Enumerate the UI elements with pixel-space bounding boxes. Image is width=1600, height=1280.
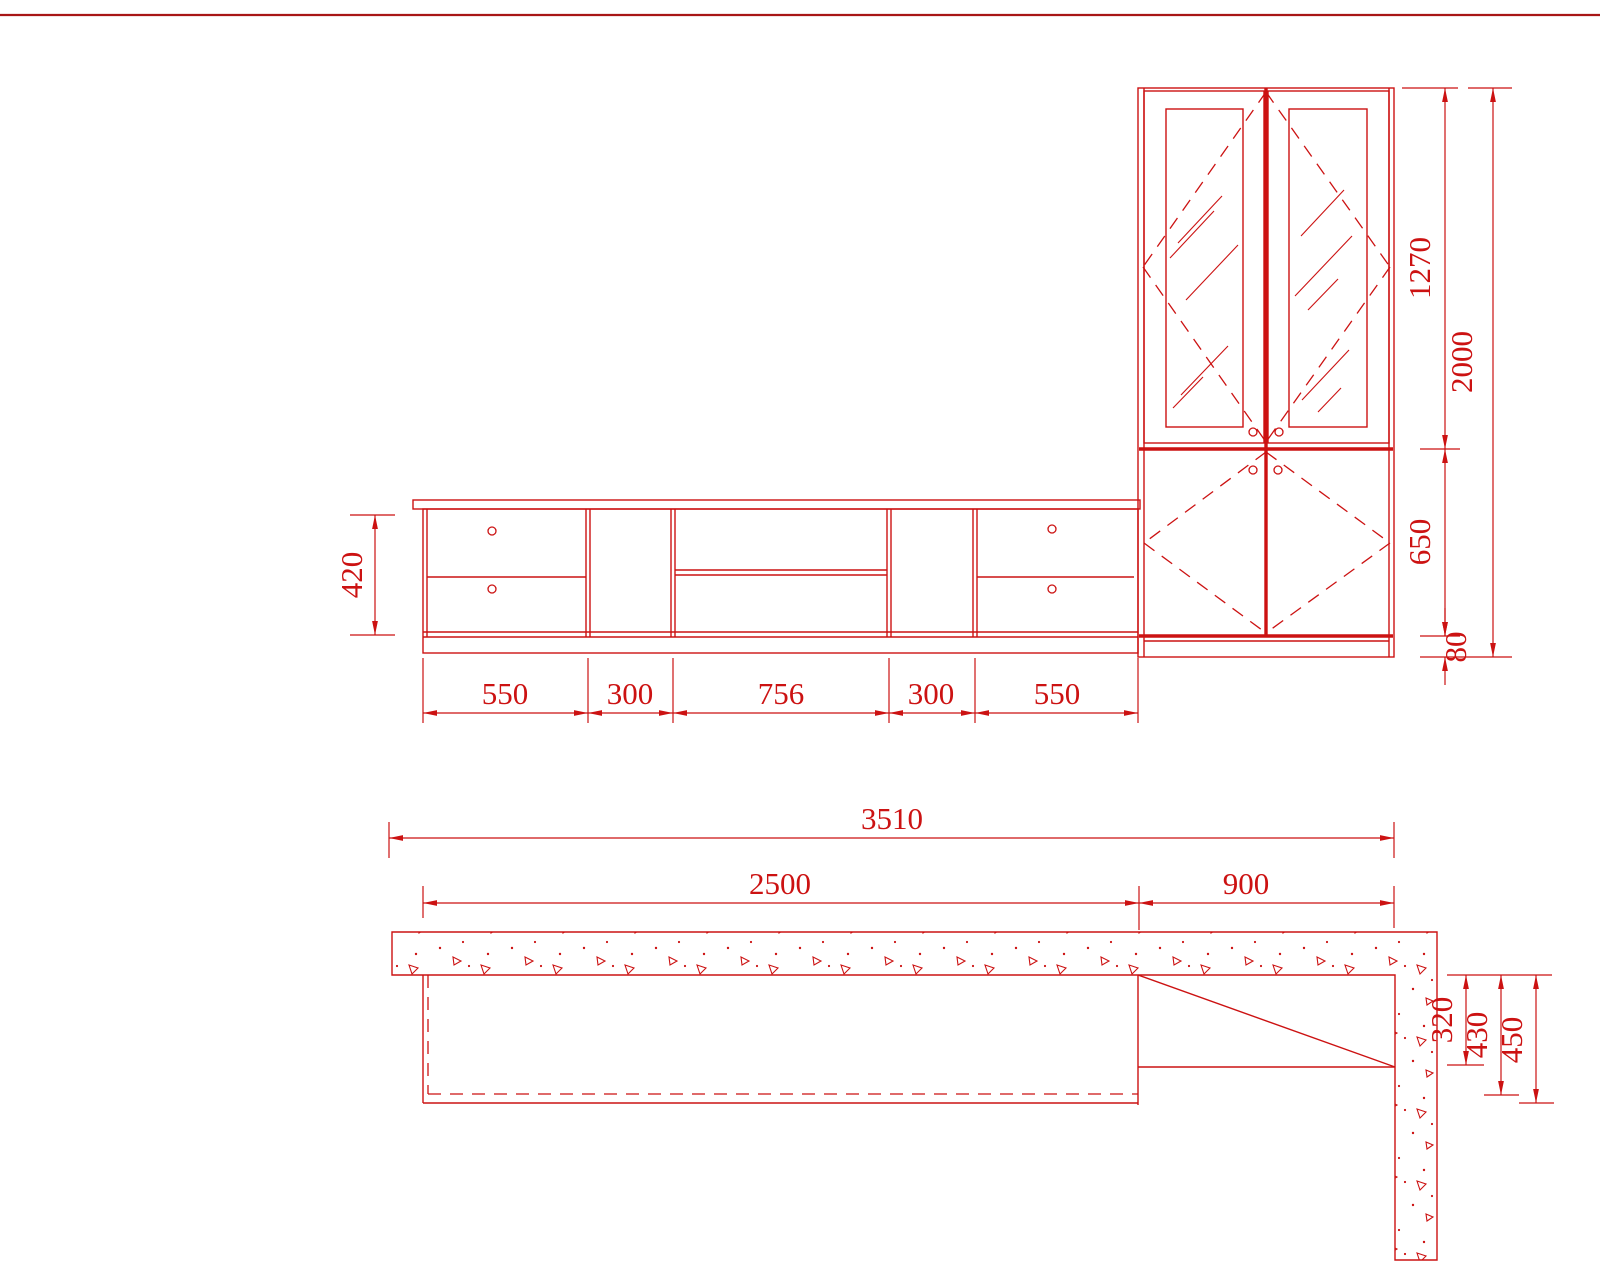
wall-hatch [392,932,1437,1260]
dim-label-2500: 2500 [749,866,811,901]
plan-view: 3510 2500 900 320 430 450 [389,801,1554,1260]
tv-cabinet-left-drawers [427,527,586,593]
dim-label-80: 80 [1438,632,1473,663]
dim-label-300-right: 300 [908,676,955,711]
dim-label-650: 650 [1402,519,1437,566]
dim-label-3510: 3510 [861,801,923,836]
tv-cabinet-top-board [413,500,1140,509]
cad-drawing-canvas: 420 550 300 756 300 550 [0,0,1600,1280]
glass-panel-right [1289,109,1367,427]
tv-cabinet-right-drawers [977,525,1134,593]
tv-cabinet-plan [423,975,1138,1105]
dim-elevation-height: 420 [334,515,395,635]
tv-cabinet-dividers [586,509,977,637]
door-knob [1275,428,1283,436]
cad-sheet: 420 550 300 756 300 550 [0,0,1600,1280]
tv-cabinet-elevation [413,500,1140,653]
glass-hatch-marks [1170,190,1352,412]
dim-label-550-right: 550 [1034,676,1081,711]
door-knob [1274,466,1282,474]
elevation-view: 420 550 300 756 300 550 [334,88,1512,723]
tall-cabinet-elevation [1138,88,1394,657]
door-knob [1249,466,1257,474]
dim-label-430: 430 [1459,1012,1494,1059]
drawer-knob [488,527,496,535]
dim-label-300-left: 300 [607,676,654,711]
tv-cabinet-middle-shelf [675,570,887,575]
dim-label-900: 900 [1223,866,1270,901]
door-knob [1249,428,1257,436]
dim-label-450: 450 [1494,1017,1529,1064]
dim-plan-widths: 3510 2500 900 [389,801,1394,930]
glass-panel-left [1166,109,1243,427]
drawer-knob [1048,585,1056,593]
dim-elevation-right: 1270 650 80 2000 [1402,88,1512,685]
dim-label-320: 320 [1424,997,1459,1044]
dim-plan-depths: 320 430 450 [1424,975,1554,1103]
drawer-knob [1048,525,1056,533]
dim-label-420: 420 [334,552,369,599]
drawer-knob [488,585,496,593]
dim-elevation-widths: 550 300 756 300 550 [423,658,1138,723]
dim-label-756: 756 [758,676,805,711]
plan-diagonal-line [1138,975,1395,1067]
tall-cabinet-plan [1138,975,1395,1067]
dim-label-1270: 1270 [1402,237,1437,299]
dim-label-550-left: 550 [482,676,529,711]
dim-label-2000: 2000 [1444,331,1479,393]
